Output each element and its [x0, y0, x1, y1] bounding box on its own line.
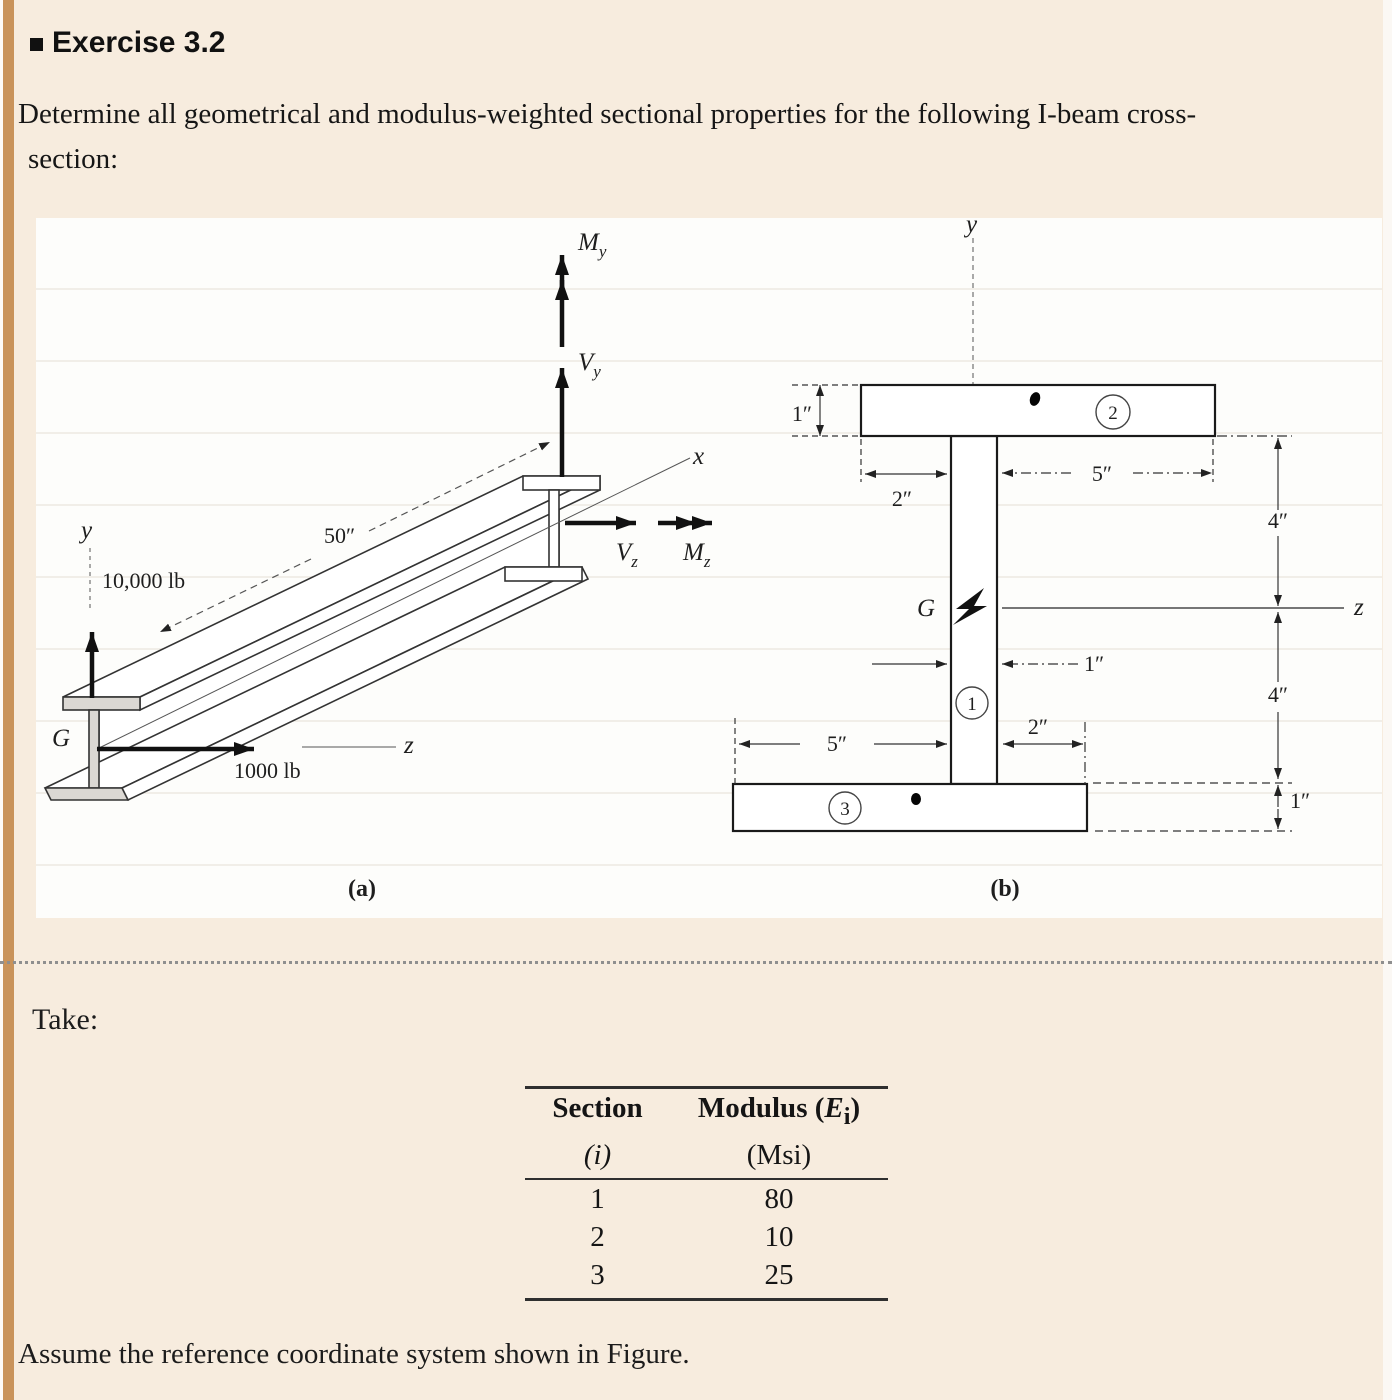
table-header-row-2: (i) (Msi) — [525, 1136, 888, 1174]
table-header-row-1: Section Modulus (Ei) — [525, 1089, 888, 1136]
top-flange-rect — [861, 385, 1215, 436]
section-1-number: 1 — [967, 694, 977, 715]
caption-a: (a) — [348, 876, 376, 902]
shear-z-label: Vz — [616, 539, 638, 571]
footer-note: Assume the reference coordinate system s… — [18, 1338, 690, 1371]
ink-blob — [911, 793, 921, 805]
y-axis-label-a: y — [78, 517, 93, 544]
bottom-flange-far-face — [505, 567, 582, 581]
modulus-table: Section Modulus (Ei) (i) (Msi) 1 80 2 10… — [525, 1086, 888, 1301]
dotted-separator — [0, 961, 1392, 964]
document-page: Exercise 3.2 Determine all geometrical a… — [0, 0, 1392, 1400]
dim-bottom-left-width: 5″ — [827, 731, 847, 756]
col-section-header: Section — [525, 1089, 670, 1136]
shear-y-label: Vy — [578, 349, 601, 381]
ibeam-figure: x 50″ My Vy Vz Mz y 10,000 lb G — [36, 218, 1382, 918]
vertical-force-label: 10,000 lb — [102, 568, 185, 593]
caption-b: (b) — [990, 876, 1019, 902]
length-dim-label: 50″ — [324, 523, 355, 548]
moment-y-label: My — [577, 229, 607, 261]
moment-z-label: Mz — [682, 539, 711, 571]
section-cell: 1 — [525, 1180, 670, 1218]
dim-top-flange-thickness: 1″ — [792, 401, 812, 426]
left-accent-bar — [3, 0, 14, 1400]
z-axis-label-b: z — [1353, 594, 1364, 621]
col-modulus-header: Modulus (Ei) — [670, 1089, 888, 1136]
take-label: Take: — [32, 1003, 98, 1037]
x-axis-line — [97, 458, 690, 749]
section-cell: 2 — [525, 1218, 670, 1256]
bottom-flange-near-face — [45, 788, 128, 800]
exercise-title: Exercise 3.2 — [52, 26, 225, 60]
horizontal-force-label: 1000 lb — [234, 758, 301, 783]
x-axis-label: x — [692, 443, 704, 470]
right-edge-strip — [1383, 0, 1392, 1400]
dim-upper-height: 4″ — [1268, 508, 1288, 533]
top-flange-near-face — [63, 697, 140, 710]
section-3-number: 3 — [840, 799, 850, 820]
dim-top-right-width: 5″ — [1092, 461, 1112, 486]
modulus-cell: 10 — [670, 1218, 888, 1256]
table-row: 3 25 — [525, 1256, 888, 1294]
problem-statement-line2: section: — [28, 143, 118, 176]
section-cell: 3 — [525, 1256, 670, 1294]
table-bottom-rule — [525, 1298, 888, 1301]
exercise-header: Exercise 3.2 — [30, 26, 225, 60]
dim-lower-height: 4″ — [1268, 682, 1288, 707]
centroid-label-a: G — [52, 725, 70, 752]
web-far-face — [549, 490, 559, 567]
modulus-cell: 25 — [670, 1256, 888, 1294]
dim-web-width: 1″ — [1084, 651, 1104, 676]
figure-panel: x 50″ My Vy Vz Mz y 10,000 lb G — [36, 218, 1382, 918]
bullet-square-icon — [30, 38, 43, 51]
table-row: 2 10 — [525, 1218, 888, 1256]
modulus-cell: 80 — [670, 1180, 888, 1218]
dim-top-left-width: 2″ — [892, 486, 912, 511]
col-modulus-units: (Msi) — [670, 1136, 888, 1174]
top-flange-far-face — [523, 476, 600, 490]
dim-bottom-right-width: 2″ — [1028, 714, 1048, 739]
table-row: 1 80 — [525, 1180, 888, 1218]
centroid-label-b: G — [917, 595, 935, 622]
problem-statement-line1: Determine all geometrical and modulus-we… — [18, 98, 1196, 131]
section-2-number: 2 — [1108, 403, 1118, 424]
y-axis-label-b: y — [963, 218, 978, 238]
z-axis-label-a: z — [403, 732, 414, 759]
col-section-units: (i) — [584, 1139, 611, 1171]
bottom-flange-rect — [733, 784, 1087, 831]
dim-bottom-flange-thickness: 1″ — [1290, 788, 1310, 813]
